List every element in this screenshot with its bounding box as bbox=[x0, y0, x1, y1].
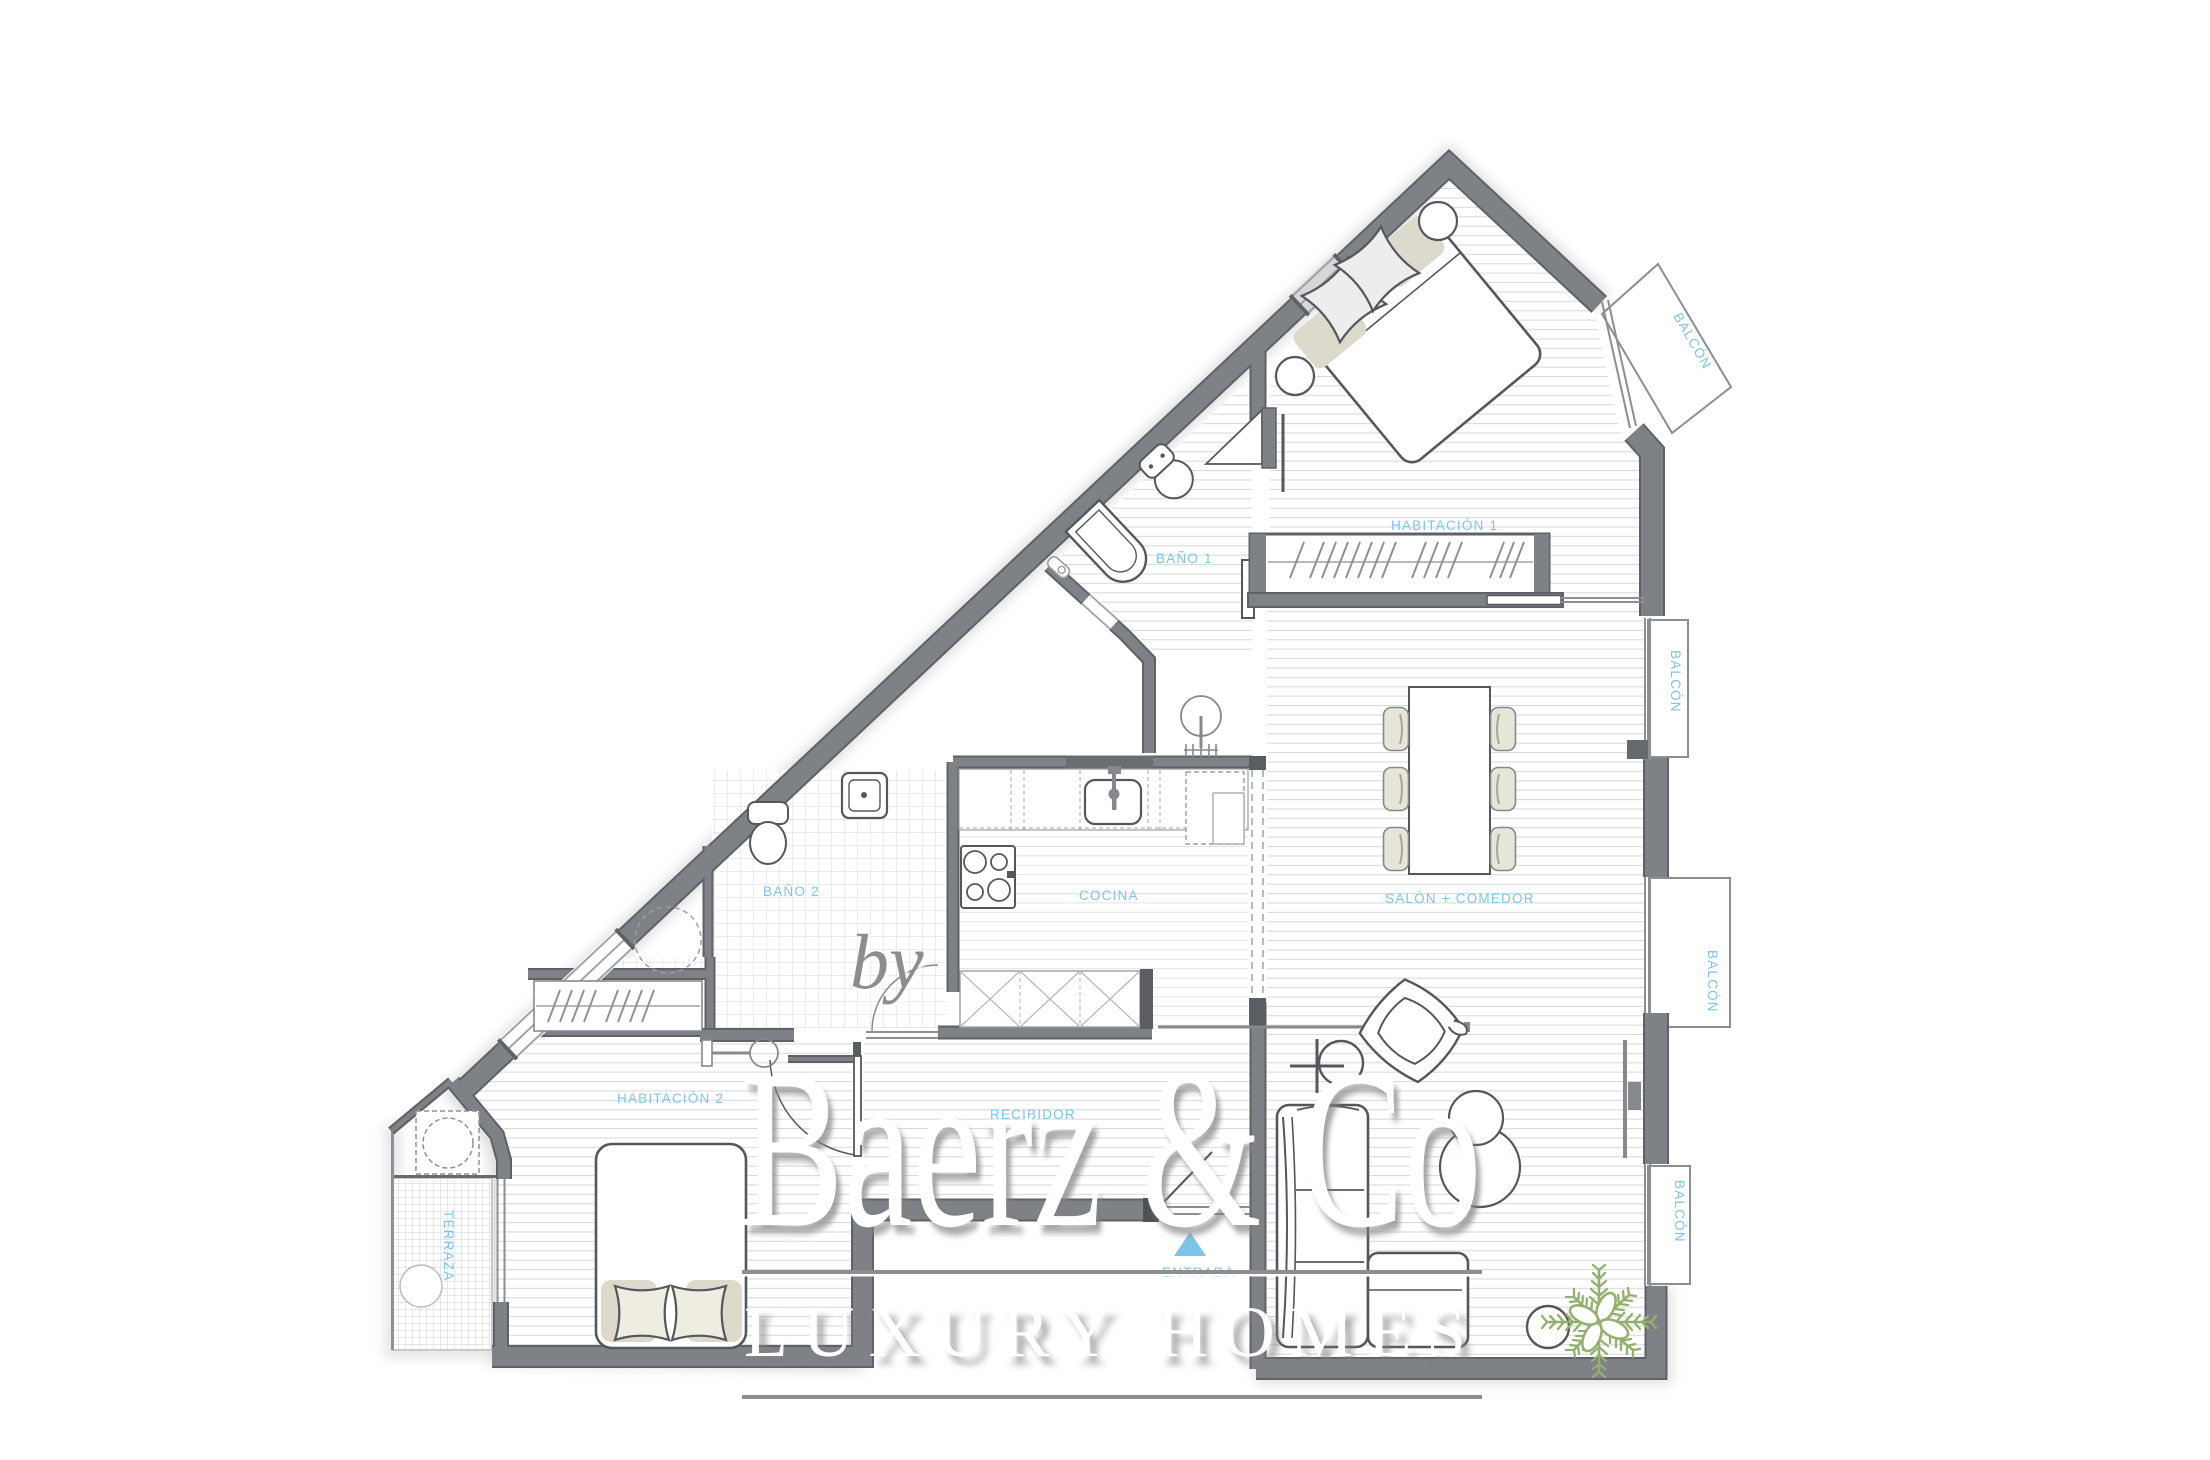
svg-text:by: by bbox=[850, 918, 924, 1005]
svg-text:BALCÓN: BALCÓN bbox=[1672, 1180, 1687, 1243]
svg-text:Baerz & Co: Baerz & Co bbox=[740, 1024, 1482, 1275]
svg-text:SALÓN + COMEDOR: SALÓN + COMEDOR bbox=[1385, 891, 1535, 906]
svg-text:BAÑO 2: BAÑO 2 bbox=[763, 884, 820, 899]
svg-text:BAÑO 1: BAÑO 1 bbox=[1156, 551, 1213, 566]
svg-text:HABITACIÓN 1: HABITACIÓN 1 bbox=[1391, 518, 1498, 533]
svg-text:TERRAZA: TERRAZA bbox=[441, 1210, 456, 1281]
svg-text:COCINA: COCINA bbox=[1079, 888, 1139, 903]
svg-text:BALCÓN: BALCÓN bbox=[1668, 650, 1683, 713]
svg-text:HABITACIÓN 2: HABITACIÓN 2 bbox=[617, 1091, 724, 1106]
svg-text:BALCÓN: BALCÓN bbox=[1705, 950, 1720, 1013]
